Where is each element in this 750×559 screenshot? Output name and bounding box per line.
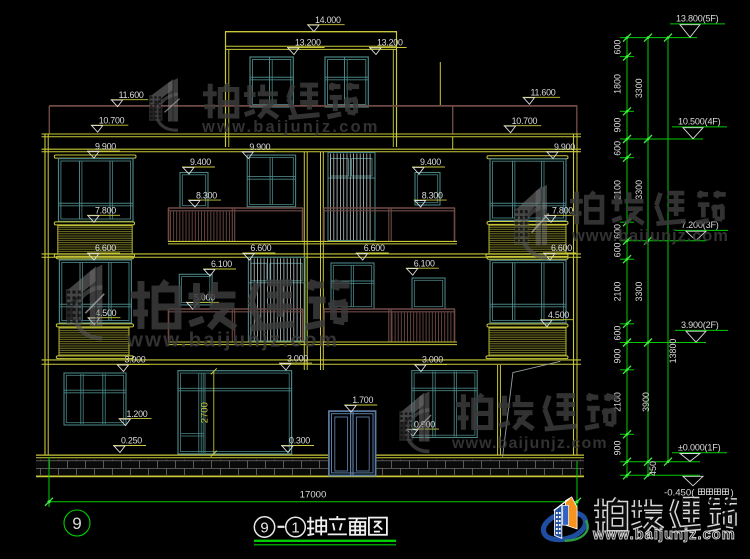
svg-text:3.900(2F): 3.900(2F) xyxy=(681,320,719,330)
svg-text:10.500(4F): 10.500(4F) xyxy=(678,117,721,127)
svg-text:9.400: 9.400 xyxy=(420,157,441,167)
svg-text:900: 900 xyxy=(613,349,623,364)
svg-text:13.200: 13.200 xyxy=(377,38,403,48)
svg-text:6.100: 6.100 xyxy=(211,259,232,269)
svg-text:900: 900 xyxy=(613,441,623,456)
svg-text:600: 600 xyxy=(613,326,623,341)
svg-text:10.700: 10.700 xyxy=(512,116,538,126)
svg-text:6.600: 6.600 xyxy=(95,243,116,253)
svg-text:±0.000(1F): ±0.000(1F) xyxy=(678,443,721,453)
svg-text:3.000: 3.000 xyxy=(287,353,308,363)
svg-text:www.baijunjz.com: www.baijunjz.com xyxy=(571,227,729,245)
svg-text:www.baijunjz.com: www.baijunjz.com xyxy=(592,527,736,543)
svg-text:600: 600 xyxy=(613,40,623,55)
svg-text:1.200: 1.200 xyxy=(127,409,148,419)
svg-text:0.250: 0.250 xyxy=(121,436,142,446)
svg-text:2100: 2100 xyxy=(613,282,623,302)
svg-text:9: 9 xyxy=(260,519,268,536)
svg-text:www.baijunjz.com: www.baijunjz.com xyxy=(201,118,380,136)
svg-text:2700: 2700 xyxy=(200,402,211,423)
svg-text:1800: 1800 xyxy=(613,74,623,94)
svg-text:9.900: 9.900 xyxy=(95,141,116,151)
svg-text:3.000: 3.000 xyxy=(125,355,146,365)
svg-text:www.baijunjz.com: www.baijunjz.com xyxy=(126,329,339,352)
svg-text:6.600: 6.600 xyxy=(250,243,271,253)
svg-text:10.700: 10.700 xyxy=(99,115,125,125)
svg-text:13.200: 13.200 xyxy=(295,38,321,48)
svg-text:11.600: 11.600 xyxy=(531,88,556,98)
svg-text:900: 900 xyxy=(613,118,623,133)
svg-text:13800: 13800 xyxy=(668,339,678,364)
svg-text:6.600: 6.600 xyxy=(364,243,385,253)
svg-text:9.400: 9.400 xyxy=(190,157,211,167)
svg-text:3300: 3300 xyxy=(634,78,644,98)
svg-text:0.300: 0.300 xyxy=(289,436,310,446)
svg-text:6.600: 6.600 xyxy=(551,243,572,253)
svg-text:14.000: 14.000 xyxy=(315,15,341,25)
svg-text:600: 600 xyxy=(613,141,623,156)
svg-text:4.500: 4.500 xyxy=(548,310,569,320)
svg-text:8.300: 8.300 xyxy=(422,190,443,200)
svg-text:7.800: 7.800 xyxy=(95,206,116,216)
svg-text:): ) xyxy=(731,488,734,499)
svg-text:9.900: 9.900 xyxy=(249,142,270,152)
svg-text:450: 450 xyxy=(648,461,658,476)
svg-text:9.900: 9.900 xyxy=(554,142,575,152)
svg-text:6.100: 6.100 xyxy=(414,258,435,268)
svg-text:1.700: 1.700 xyxy=(352,395,373,405)
svg-text:3.000: 3.000 xyxy=(422,355,443,365)
svg-text:3300: 3300 xyxy=(634,180,644,200)
svg-text:7.800: 7.800 xyxy=(552,206,573,216)
svg-text:1: 1 xyxy=(291,519,299,536)
svg-text:3900: 3900 xyxy=(641,392,651,412)
svg-text:17000: 17000 xyxy=(300,489,327,500)
svg-text:9: 9 xyxy=(72,514,81,533)
svg-text:13.800(5F): 13.800(5F) xyxy=(676,14,719,24)
svg-text:www.baijunjz.com: www.baijunjz.com xyxy=(451,435,608,452)
svg-text:8.300: 8.300 xyxy=(196,190,217,200)
svg-text:3300: 3300 xyxy=(634,282,644,302)
svg-text:11.600: 11.600 xyxy=(119,90,144,100)
